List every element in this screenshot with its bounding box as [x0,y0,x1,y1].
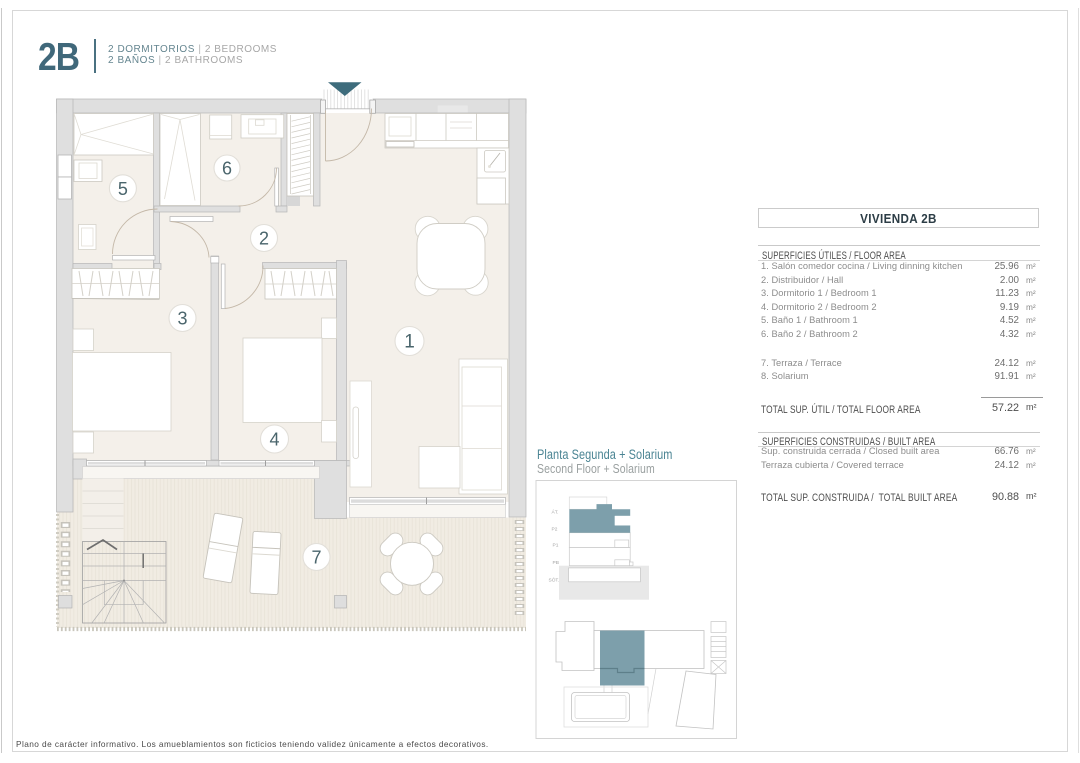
svg-text:P2: P2 [552,526,558,532]
svg-text:7: 7 [311,548,321,568]
svg-text:4: 4 [269,430,279,450]
svg-text:PB: PB [553,560,559,566]
svg-text:6: 6 [222,159,232,179]
svg-text:1: 1 [404,332,415,353]
svg-text:3: 3 [177,309,187,329]
svg-text:2: 2 [259,229,269,249]
svg-text:SÓT.: SÓT. [549,577,560,584]
svg-text:P1: P1 [553,542,559,548]
svg-text:ÁT.: ÁT. [552,509,559,516]
svg-text:5: 5 [118,179,128,199]
